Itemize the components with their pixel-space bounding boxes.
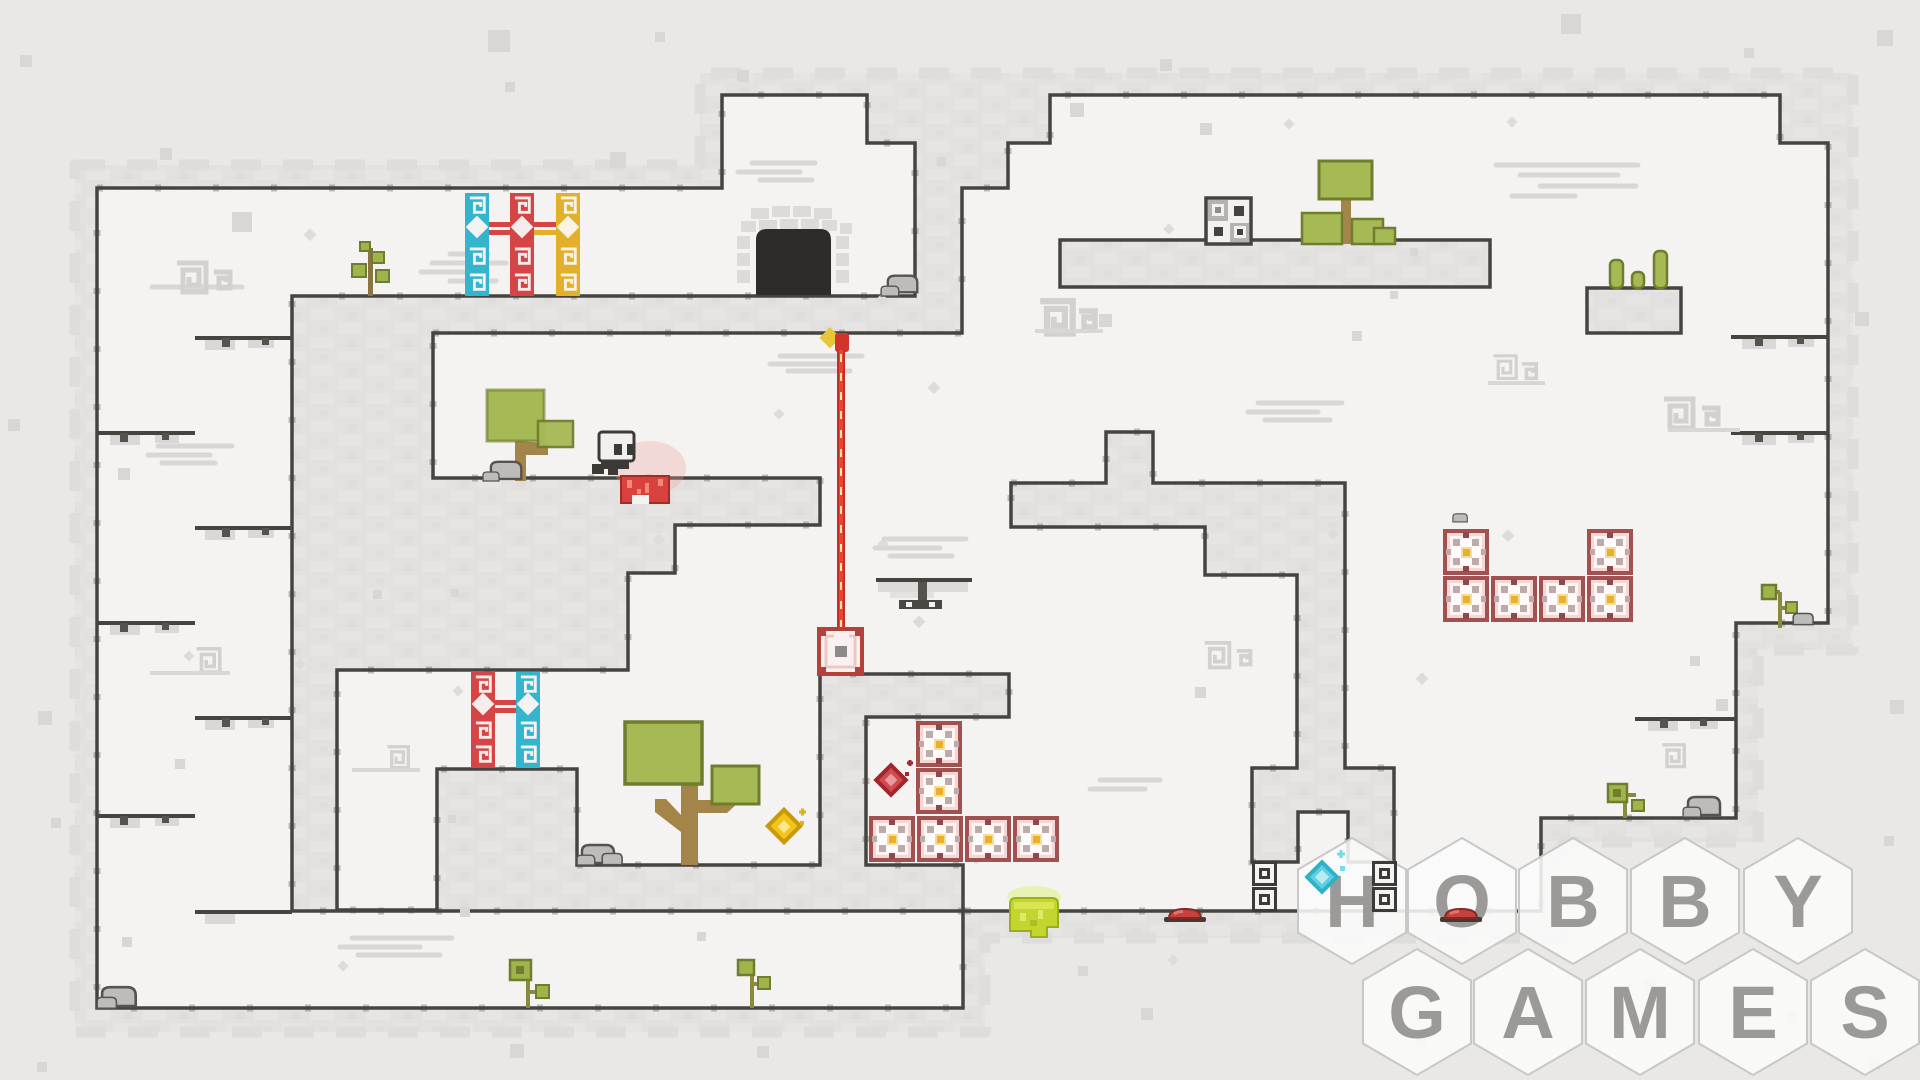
svg-text:E: E [1728,971,1777,1054]
svg-text:B: B [1546,860,1599,943]
svg-text:G: G [1388,971,1446,1054]
svg-text:A: A [1501,971,1554,1054]
svg-text:Y: Y [1773,860,1822,943]
svg-text:S: S [1840,971,1889,1054]
svg-text:B: B [1658,860,1711,943]
svg-text:O: O [1433,860,1491,943]
svg-text:M: M [1609,971,1671,1054]
